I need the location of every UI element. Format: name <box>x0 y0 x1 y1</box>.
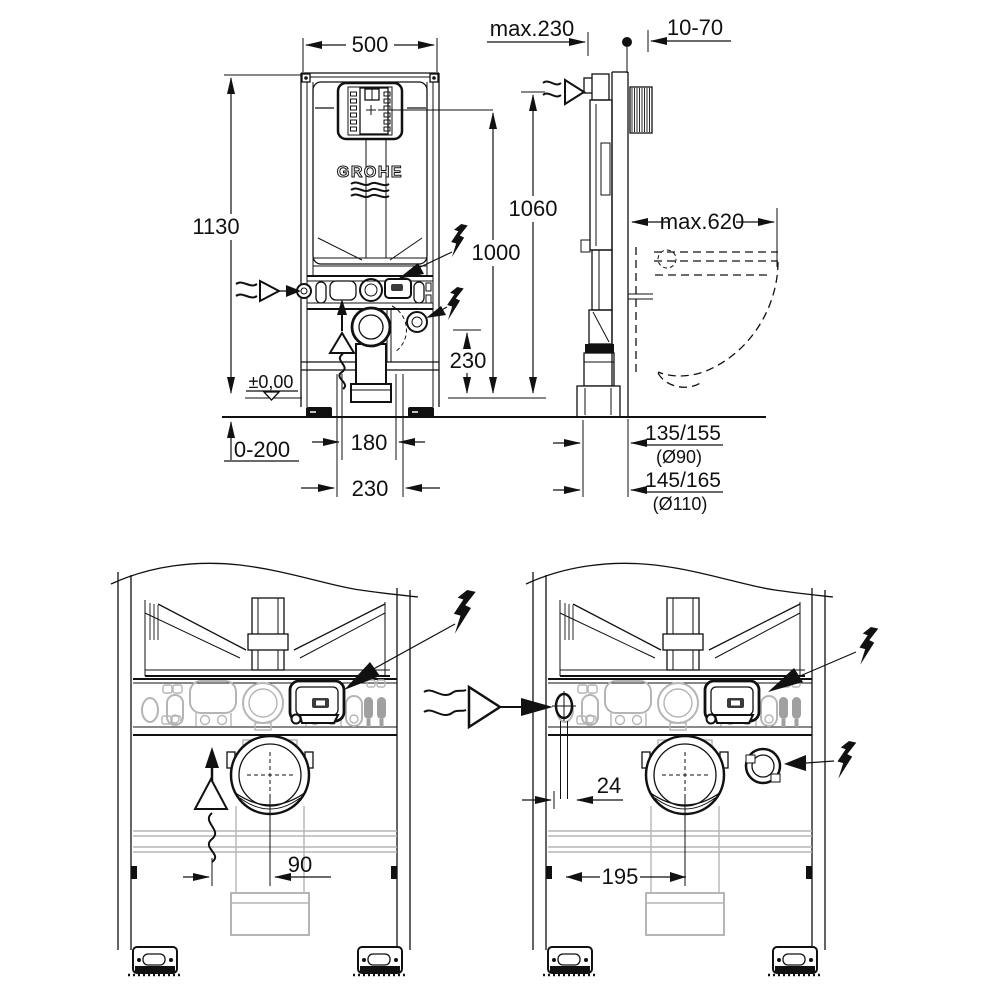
round-power-connector <box>407 312 427 332</box>
dim-bowl-depth: max.620 <box>660 209 744 234</box>
dim-outlet-d110-note: (Ø110) <box>653 494 708 514</box>
dim-recess-width: 230 <box>352 476 389 501</box>
dim-outlet-d90-note: (Ø90) <box>656 447 702 467</box>
round-power-connector <box>746 749 780 783</box>
dim-floor-buildup: 0-200 <box>234 437 290 462</box>
flush-actuation-unit <box>338 83 402 139</box>
installation-frame-detail-left <box>111 563 418 975</box>
dim-socket-offset: 195 <box>602 864 639 889</box>
brand-text: GROHE <box>337 164 403 181</box>
lightning-bolt-icon <box>784 741 856 779</box>
vent-symbol-icon <box>195 747 227 862</box>
dim-outlet-height: 230 <box>450 348 487 373</box>
dim-outlet-d110: 145/165 <box>645 469 721 492</box>
grohe-logo: GROHE <box>337 164 403 197</box>
front-view: GROHE <box>236 73 468 418</box>
dim-floor-level: ±0,00 <box>249 372 294 392</box>
technical-drawing-page: GROHE <box>0 0 1000 1000</box>
dim-wall-clearance: 10-70 <box>667 15 723 40</box>
detail-left-annotations: 90 <box>183 590 476 886</box>
level-marker-icon: ±0,00 <box>246 372 298 400</box>
dim-supply-height: 1060 <box>509 196 558 221</box>
lightning-bolt-icon <box>426 287 464 320</box>
water-supply-arrow-icon <box>424 687 553 727</box>
installation-frame-detail-right <box>526 563 833 975</box>
power-connector-socket <box>385 279 411 298</box>
dim-outlet-d90: 135/155 <box>645 422 721 445</box>
dim-drain-offset: 90 <box>288 852 312 877</box>
toilet-bowl-outline <box>636 247 778 387</box>
water-supply-arrow-icon <box>236 281 301 301</box>
installation-drawing: GROHE <box>0 0 1000 1000</box>
dim-frame-height: 1130 <box>192 214 239 239</box>
flush-bend-socket <box>352 308 390 346</box>
dim-width: 500 <box>352 32 389 57</box>
water-supply-arrow-icon <box>543 80 584 104</box>
dim-supply-offset: 24 <box>597 773 621 798</box>
dim-actuation-height: 1000 <box>472 240 521 265</box>
dimensions: 500 1130 1000 1060 230 ±0,00 0-200 <box>192 15 777 514</box>
dim-frame-depth: max.230 <box>490 16 574 41</box>
anchor-bolt-icon <box>622 37 632 47</box>
dim-outlet-offset: 180 <box>351 430 388 455</box>
lightning-bolt-icon <box>768 627 878 692</box>
